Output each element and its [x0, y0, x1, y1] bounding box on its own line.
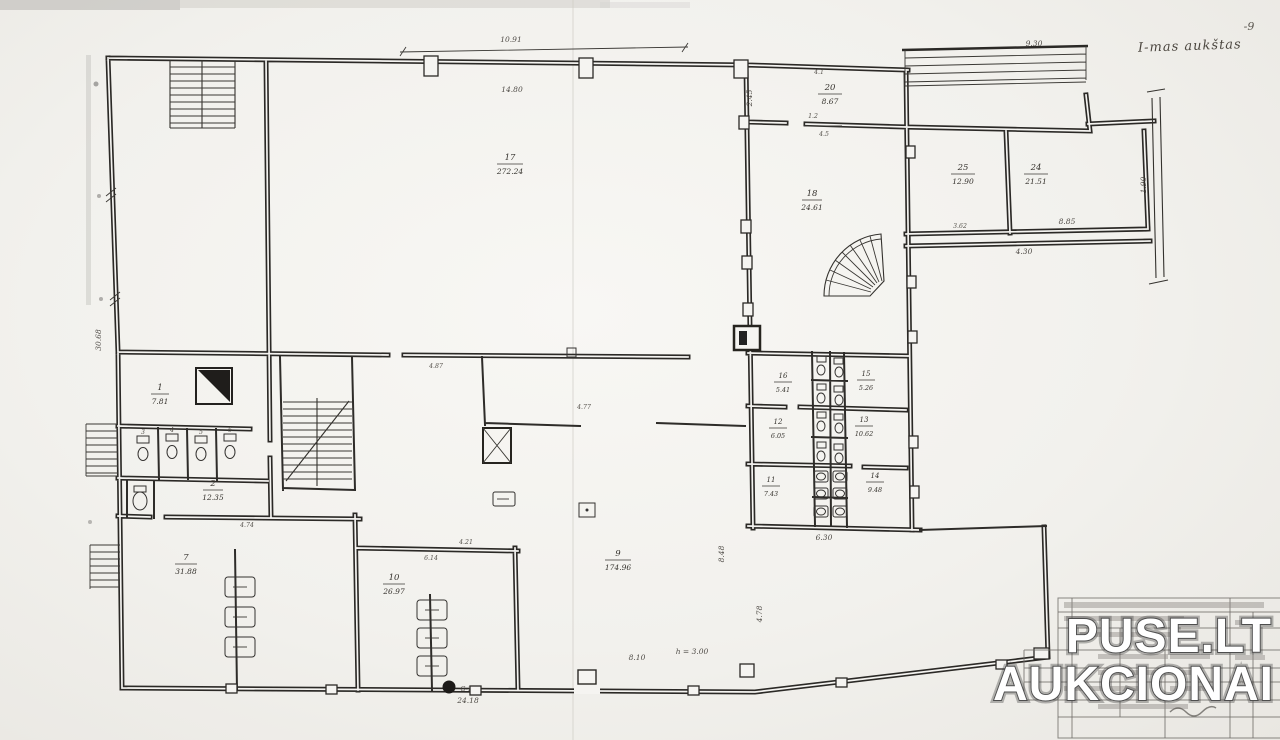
- room-17-label: 17 272.24: [496, 153, 523, 176]
- room7-desks: [225, 577, 255, 657]
- stall-4-number: 4: [169, 427, 174, 434]
- room-20-label: 20 8.67: [818, 83, 842, 106]
- room-9-number: 9: [615, 549, 621, 559]
- dim-room7-top: 4.74: [239, 522, 254, 529]
- room-14-number: 14: [871, 472, 880, 480]
- dim-grid-side-b: 4.78: [755, 605, 764, 623]
- room-15-label: 15 5.26: [857, 370, 875, 392]
- loading-ramp: [902, 46, 1088, 86]
- entrance-door: [574, 670, 600, 694]
- staircase-top-left: [170, 60, 235, 128]
- dim-hall-door: 4.87: [428, 363, 443, 370]
- room-18-number: 18: [807, 189, 818, 199]
- external-stair-west-upper: [86, 424, 118, 476]
- room-25-area: 12.90: [952, 177, 974, 186]
- dim-line-top: [400, 43, 842, 126]
- dim-annex-small: 3.62: [953, 223, 967, 230]
- fan-staircase: [824, 234, 884, 296]
- room-10-number: 10: [389, 573, 400, 583]
- dim-ramp-length: 9.30: [1026, 39, 1043, 48]
- room-13-number: 13: [860, 416, 869, 424]
- stall-6-number: 6: [228, 427, 232, 434]
- room-16-area: 5.41: [776, 386, 790, 394]
- room-7-area: 31.88: [175, 567, 197, 576]
- room-25-number: 25: [957, 163, 969, 173]
- room-20-number: 20: [824, 83, 836, 93]
- room-9-area: 174.96: [605, 563, 631, 572]
- room-18-area: 24.61: [800, 203, 822, 212]
- dim-grid-width: 6.30: [816, 533, 833, 542]
- stall-3-number: 3: [141, 429, 145, 436]
- room-2-area: 12.35: [202, 493, 224, 502]
- room-11-area: 7.43: [764, 490, 778, 498]
- dim-hall-inner-width: 14.80: [501, 85, 523, 94]
- room-15-area: 5.26: [859, 384, 873, 392]
- scanned-floor-plan-page: 17 272.24 9 174.96 18 24.61 20 8.67 25 1…: [0, 0, 1280, 740]
- room-2-number: 2: [209, 479, 215, 489]
- dim-room10-top-b: 6.14: [424, 555, 438, 562]
- room-12-number: 12: [774, 418, 783, 426]
- room-7-number: 7: [183, 553, 189, 563]
- room-24-area: 21.51: [1024, 177, 1046, 186]
- room-14-area: 9.48: [868, 486, 882, 494]
- room-7-label: 7 31.88: [175, 553, 197, 576]
- room-1-number: 1: [157, 383, 162, 393]
- room-13-area: 10.62: [855, 430, 873, 438]
- scan-artifacts: [0, 0, 690, 740]
- floor-plan-image: 17 272.24 9 174.96 18 24.61 20 8.67 25 1…: [0, 0, 1280, 740]
- dim-grid-side-a: 8.48: [717, 545, 726, 562]
- room-17-number: 17: [505, 153, 516, 163]
- room-20-area: 8.67: [822, 97, 839, 106]
- lobby-box: [734, 326, 760, 350]
- room-10-area: 26.97: [382, 587, 405, 596]
- section-marker: [443, 681, 456, 694]
- room-16-number: 16: [779, 372, 788, 380]
- dim-top-small-c: 4.5: [818, 131, 829, 138]
- external-stair-west-lower: [90, 545, 120, 589]
- dim-top-hall-width: 10.91: [500, 35, 521, 44]
- shaft-dark-triangle: [196, 368, 232, 404]
- room-12-area: 6.05: [771, 432, 785, 440]
- room-11-label: 11 7.43: [762, 476, 780, 498]
- watermark: PUSE.LT PUSE.LT AUKCIONAI AUKCIONAI: [993, 610, 1274, 711]
- room-12-label: 12 6.05: [769, 418, 787, 440]
- room-1-area: 7.81: [152, 397, 169, 406]
- dim-yard-wall: 1.90: [1139, 176, 1148, 193]
- room-10-label: 10 26.97: [382, 573, 405, 596]
- small-furniture: [493, 492, 595, 517]
- dim-room10-top-a: 4.21: [458, 539, 473, 546]
- floor-note: I-mas aukštas: [1137, 37, 1242, 56]
- watermark-line2: AUKCIONAI: [993, 658, 1274, 711]
- dim-top-small-a: 4.1: [813, 69, 824, 76]
- room-18-label: 18 24.61: [800, 189, 822, 212]
- room-1-label: 1 7.81: [151, 383, 169, 406]
- building-walls: [108, 58, 1154, 692]
- dimension-labels: 10.91 14.80 9.30 2.45 4.1 1.2 4.5 3.62 8…: [94, 35, 1148, 705]
- yard-flared-wall: [1147, 89, 1168, 284]
- staircase-mid-left: [283, 398, 352, 486]
- room-17-area: 272.24: [496, 167, 523, 176]
- dim-west-length: 30.68: [94, 329, 103, 351]
- dim-annex-width: 8.85: [1059, 217, 1076, 226]
- shaft-crossed: [483, 428, 511, 463]
- room-11-number: 11: [767, 476, 776, 484]
- dim-bottom-opening: 8.10: [629, 653, 646, 662]
- section-cut-label: G-1: [460, 686, 471, 693]
- room-13-label: 13 10.62: [855, 416, 873, 438]
- dim-top-small-b: 1.2: [808, 113, 818, 120]
- room-24-number: 24: [1030, 163, 1042, 173]
- room-14-label: 14 9.48: [866, 472, 884, 494]
- stall-5-number: 5: [199, 429, 203, 436]
- dim-east-wing-depth: 2.45: [745, 89, 754, 107]
- room-24-label: 24 21.51: [1024, 163, 1048, 186]
- dim-bottom-length: 24.18: [456, 696, 479, 705]
- room-9-label: 9 174.96: [605, 549, 631, 572]
- dim-mid-opening: 4.77: [576, 404, 591, 411]
- dim-annex-offset: 4.30: [1015, 247, 1033, 256]
- room-16-label: 16 5.41: [774, 372, 792, 394]
- room-25-label: 25 12.90: [951, 163, 975, 186]
- page-mark: -9: [1244, 20, 1255, 33]
- room-15-number: 15: [862, 370, 871, 378]
- watermark-line1: PUSE.LT: [1066, 610, 1272, 663]
- level-note: h = 3.00: [676, 647, 709, 656]
